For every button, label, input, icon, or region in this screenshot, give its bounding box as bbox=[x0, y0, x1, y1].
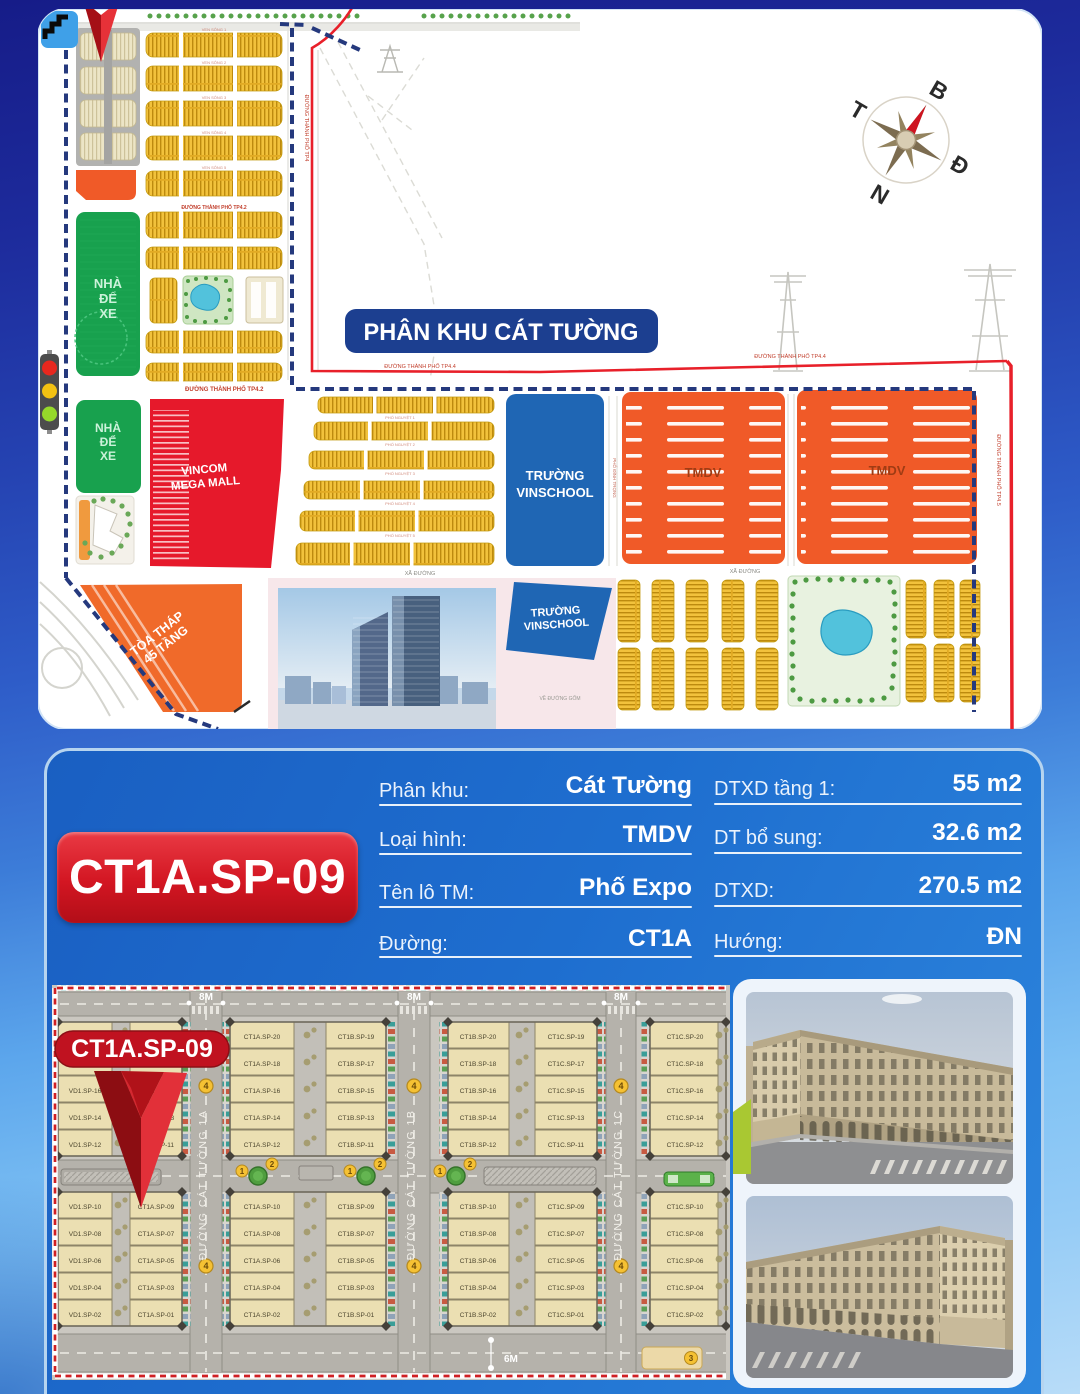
svg-text:CT1B.SP-08: CT1B.SP-08 bbox=[460, 1231, 497, 1238]
svg-text:CT1A.SP-04: CT1A.SP-04 bbox=[244, 1285, 281, 1292]
svg-text:CT1C.SP-19: CT1C.SP-19 bbox=[548, 1034, 585, 1041]
svg-text:CT1C.SP-11: CT1C.SP-11 bbox=[548, 1142, 585, 1149]
svg-text:VEN SÔNG 4: VEN SÔNG 4 bbox=[202, 130, 227, 135]
svg-text:CT1A.SP-20: CT1A.SP-20 bbox=[244, 1034, 281, 1041]
svg-text:ĐƯỜNG THÀNH PHỐ TP4.4: ĐƯỜNG THÀNH PHỐ TP4.4 bbox=[754, 353, 826, 360]
svg-text:CT1B.SP-14: CT1B.SP-14 bbox=[460, 1115, 497, 1122]
svg-text:CT1B.SP-16: CT1B.SP-16 bbox=[460, 1088, 497, 1095]
svg-text:TMDV: TMDV bbox=[685, 465, 722, 480]
svg-text:VD1.SP-14: VD1.SP-14 bbox=[69, 1115, 102, 1122]
svg-text:ĐƯỜNG CÁT TƯỜNG 1A: ĐƯỜNG CÁT TƯỜNG 1A bbox=[196, 1110, 209, 1261]
svg-text:CT1A.SP-01: CT1A.SP-01 bbox=[138, 1312, 175, 1319]
svg-text:CT1B.SP-20: CT1B.SP-20 bbox=[460, 1034, 497, 1041]
svg-text:CT1C.SP-04: CT1C.SP-04 bbox=[667, 1285, 704, 1292]
svg-text:2: 2 bbox=[270, 1160, 275, 1169]
svg-text:CT1C.SP-02: CT1C.SP-02 bbox=[667, 1312, 704, 1319]
svg-text:CT1C.SP-16: CT1C.SP-16 bbox=[667, 1088, 704, 1095]
svg-text:CT1A.SP-08: CT1A.SP-08 bbox=[244, 1231, 281, 1238]
svg-text:XE: XE bbox=[99, 306, 117, 321]
svg-text:CT1B.SP-07: CT1B.SP-07 bbox=[338, 1231, 375, 1238]
svg-text:CT1A.SP-12: CT1A.SP-12 bbox=[244, 1142, 281, 1149]
svg-text:ĐƯỜNG CÁT TƯỜNG 1B: ĐƯỜNG CÁT TƯỜNG 1B bbox=[404, 1110, 417, 1261]
svg-text:CT1B.SP-09: CT1B.SP-09 bbox=[338, 1204, 375, 1211]
svg-text:4: 4 bbox=[411, 1081, 416, 1091]
svg-text:TRƯỜNG: TRƯỜNG bbox=[526, 468, 585, 483]
svg-text:CT1B.SP-17: CT1B.SP-17 bbox=[338, 1061, 375, 1068]
svg-text:VEN SÔNG 2: VEN SÔNG 2 bbox=[202, 60, 227, 65]
svg-text:4: 4 bbox=[411, 1261, 416, 1271]
svg-text:CT1A.SP-09: CT1A.SP-09 bbox=[71, 1035, 213, 1063]
svg-text:VD1.SP-02: VD1.SP-02 bbox=[69, 1312, 102, 1319]
svg-text:CT1C.SP-13: CT1C.SP-13 bbox=[548, 1115, 585, 1122]
svg-text:CT1A.SP-10: CT1A.SP-10 bbox=[244, 1204, 281, 1211]
svg-text:4: 4 bbox=[618, 1261, 623, 1271]
svg-text:CT1B.SP-13: CT1B.SP-13 bbox=[338, 1115, 375, 1122]
svg-text:6M: 6M bbox=[504, 1354, 518, 1365]
svg-text:VD1.SP-12: VD1.SP-12 bbox=[69, 1142, 102, 1149]
svg-text:CT1B.SP-03: CT1B.SP-03 bbox=[338, 1285, 375, 1292]
svg-text:CT1C.SP-05: CT1C.SP-05 bbox=[548, 1258, 585, 1265]
svg-text:ĐƯỜNG THÀNH PHỐ TP4: ĐƯỜNG THÀNH PHỐ TP4 bbox=[303, 95, 310, 162]
svg-text:CT1A.SP-16: CT1A.SP-16 bbox=[244, 1088, 281, 1095]
svg-text:CT1A.SP-06: CT1A.SP-06 bbox=[244, 1258, 281, 1265]
svg-text:CT1C.SP-06: CT1C.SP-06 bbox=[667, 1258, 704, 1265]
svg-text:ĐƯỜNG THÀNH PHỐ TP4.2: ĐƯỜNG THÀNH PHỐ TP4.2 bbox=[185, 385, 264, 393]
svg-text:VD1.SP-10: VD1.SP-10 bbox=[69, 1204, 102, 1211]
svg-text:TMDV: TMDV bbox=[869, 463, 906, 478]
svg-text:CT1B.SP-11: CT1B.SP-11 bbox=[338, 1142, 374, 1149]
svg-text:VEN SÔNG 3: VEN SÔNG 3 bbox=[202, 95, 227, 100]
svg-text:4: 4 bbox=[203, 1261, 208, 1271]
svg-text:CT1A.SP-09: CT1A.SP-09 bbox=[138, 1204, 175, 1211]
svg-text:3: 3 bbox=[689, 1354, 694, 1363]
svg-text:CT1C.SP-14: CT1C.SP-14 bbox=[667, 1115, 704, 1122]
svg-text:CT1B.SP-12: CT1B.SP-12 bbox=[460, 1142, 497, 1149]
svg-text:CT1B.SP-15: CT1B.SP-15 bbox=[338, 1088, 375, 1095]
svg-text:VỀ ĐƯỜNG GỐM: VỀ ĐƯỜNG GỐM bbox=[539, 695, 580, 702]
svg-text:VD1.SP-16: VD1.SP-16 bbox=[69, 1088, 102, 1095]
svg-text:PHÂN KHU CÁT TƯỜNG: PHÂN KHU CÁT TƯỜNG bbox=[364, 318, 639, 346]
svg-text:CT1B.SP-02: CT1B.SP-02 bbox=[460, 1312, 497, 1319]
svg-text:CT1A.SP-07: CT1A.SP-07 bbox=[138, 1231, 175, 1238]
svg-text:1: 1 bbox=[438, 1167, 443, 1176]
svg-text:8M: 8M bbox=[199, 992, 213, 1003]
svg-text:2: 2 bbox=[378, 1160, 383, 1169]
svg-text:XÃ ĐƯỜNG: XÃ ĐƯỜNG bbox=[405, 570, 436, 577]
svg-text:ĐƯỜNG CÁT TƯỜNG 1C: ĐƯỜNG CÁT TƯỜNG 1C bbox=[611, 1109, 624, 1260]
svg-text:ĐỂ: ĐỂ bbox=[100, 434, 117, 449]
svg-text:CT1C.SP-03: CT1C.SP-03 bbox=[548, 1285, 585, 1292]
svg-text:NHÀ: NHÀ bbox=[95, 420, 121, 435]
svg-text:CT1A.SP-18: CT1A.SP-18 bbox=[244, 1061, 281, 1068]
svg-text:PHỐ NGUYỆT 2: PHỐ NGUYỆT 2 bbox=[385, 442, 415, 447]
svg-text:CT1B.SP-18: CT1B.SP-18 bbox=[460, 1061, 497, 1068]
svg-text:NHÀ: NHÀ bbox=[94, 276, 123, 291]
svg-text:CT1A.SP-02: CT1A.SP-02 bbox=[244, 1312, 281, 1319]
svg-text:VD1.SP-08: VD1.SP-08 bbox=[69, 1231, 102, 1238]
svg-text:CT1B.SP-05: CT1B.SP-05 bbox=[338, 1258, 375, 1265]
svg-text:CT1C.SP-09: CT1C.SP-09 bbox=[548, 1204, 585, 1211]
svg-text:8M: 8M bbox=[407, 992, 421, 1003]
svg-text:CT1C.SP-12: CT1C.SP-12 bbox=[667, 1142, 704, 1149]
svg-text:CT1C.SP-10: CT1C.SP-10 bbox=[667, 1204, 704, 1211]
svg-text:PHỐ NGUYỆT 1: PHỐ NGUYỆT 1 bbox=[385, 415, 415, 420]
svg-text:ĐƯỜNG THÀNH PHỐ TP4.4: ĐƯỜNG THÀNH PHỐ TP4.4 bbox=[384, 363, 456, 370]
svg-text:4: 4 bbox=[203, 1081, 208, 1091]
svg-text:CT1C.SP-01: CT1C.SP-01 bbox=[548, 1312, 585, 1319]
svg-text:ĐƯỜNG THÀNH PHỐ TP4.2: ĐƯỜNG THÀNH PHỐ TP4.2 bbox=[181, 203, 247, 211]
svg-text:CT1A.SP-03: CT1A.SP-03 bbox=[138, 1285, 175, 1292]
svg-text:4: 4 bbox=[618, 1081, 623, 1091]
svg-text:CT1C.SP-18: CT1C.SP-18 bbox=[667, 1061, 704, 1068]
svg-text:PHỐ ĐÌNH TRỌNG: PHỐ ĐÌNH TRỌNG bbox=[612, 458, 618, 498]
svg-text:CT1C.SP-07: CT1C.SP-07 bbox=[548, 1231, 585, 1238]
svg-text:XE: XE bbox=[100, 449, 116, 463]
svg-text:CT1B.SP-10: CT1B.SP-10 bbox=[460, 1204, 497, 1211]
svg-text:VD1.SP-04: VD1.SP-04 bbox=[69, 1285, 102, 1292]
svg-text:CT1C.SP-20: CT1C.SP-20 bbox=[667, 1034, 704, 1041]
svg-text:VINSCHOOL: VINSCHOOL bbox=[516, 485, 593, 500]
svg-text:CT1B.SP-04: CT1B.SP-04 bbox=[460, 1285, 497, 1292]
svg-text:ĐƯỜNG THÀNH PHỐ TP4.5: ĐƯỜNG THÀNH PHỐ TP4.5 bbox=[995, 434, 1002, 506]
svg-text:PHỐ NGUYỆT 5: PHỐ NGUYỆT 5 bbox=[385, 533, 415, 538]
svg-text:CT1C.SP-17: CT1C.SP-17 bbox=[548, 1061, 585, 1068]
svg-text:PHỐ NGUYỆT 3: PHỐ NGUYỆT 3 bbox=[385, 471, 415, 476]
svg-text:CT1B.SP-01: CT1B.SP-01 bbox=[338, 1312, 375, 1319]
svg-text:VD1.SP-06: VD1.SP-06 bbox=[69, 1258, 102, 1265]
svg-text:1: 1 bbox=[348, 1167, 353, 1176]
svg-text:CT1C.SP-08: CT1C.SP-08 bbox=[667, 1231, 704, 1238]
svg-text:XÃ ĐƯỜNG: XÃ ĐƯỜNG bbox=[730, 568, 761, 575]
svg-text:CT1A.SP-14: CT1A.SP-14 bbox=[244, 1115, 281, 1122]
svg-text:CT1C.SP-15: CT1C.SP-15 bbox=[548, 1088, 585, 1095]
svg-text:CT1B.SP-06: CT1B.SP-06 bbox=[460, 1258, 497, 1265]
svg-text:CT1B.SP-19: CT1B.SP-19 bbox=[338, 1034, 375, 1041]
svg-text:1: 1 bbox=[240, 1167, 245, 1176]
svg-text:VEN SÔNG 5: VEN SÔNG 5 bbox=[202, 165, 227, 170]
svg-text:ĐỂ: ĐỂ bbox=[99, 291, 117, 306]
svg-text:VEN SÔNG 1: VEN SÔNG 1 bbox=[202, 27, 227, 32]
svg-text:8M: 8M bbox=[614, 992, 628, 1003]
svg-text:PHỐ NGUYỆT 4: PHỐ NGUYỆT 4 bbox=[385, 501, 415, 506]
svg-text:CT1A.SP-05: CT1A.SP-05 bbox=[138, 1258, 175, 1265]
svg-text:2: 2 bbox=[468, 1160, 473, 1169]
